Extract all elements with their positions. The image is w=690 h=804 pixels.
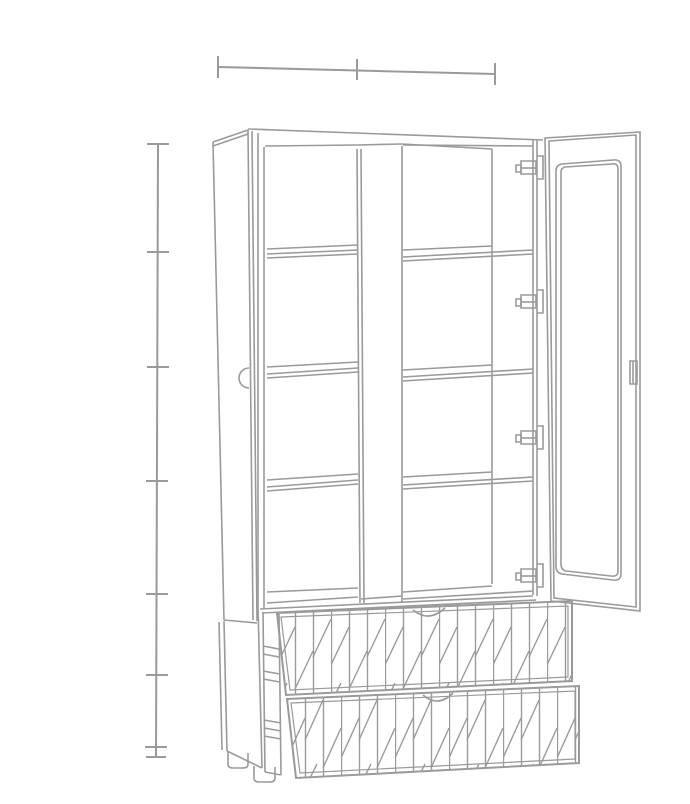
door-inner-panel [556,160,621,580]
drawer-top [277,601,572,695]
shelf [403,246,533,261]
hinge-1 [516,156,543,179]
drawer-slide-rail [263,646,279,649]
canvas [0,0,690,804]
left-door [213,130,257,623]
door-edge-pull-handle [239,368,249,388]
shelf [267,362,358,378]
top-dimension-line [218,56,495,85]
drawer-box-side [263,612,281,775]
left-dimension-line [145,144,169,757]
dimension-line [156,144,158,757]
shelf [403,472,533,489]
shelf [267,474,358,491]
drawer-bottom [287,686,579,778]
shelves-right-column [403,246,533,489]
drawer-slide-rail [263,671,280,674]
base-side [219,607,275,782]
cabinet-technical-drawing [0,0,690,804]
hinges [516,156,543,587]
hinge-3 [516,426,543,449]
drawing-lines [145,56,640,782]
shelf [403,365,533,381]
hinge-2 [516,290,543,313]
right-door [545,132,640,611]
hinge-4 [516,564,543,587]
center-divider [357,149,360,603]
shelf [267,245,358,258]
shelves-left-column [267,245,358,491]
drawer-slide-rail [264,720,281,723]
